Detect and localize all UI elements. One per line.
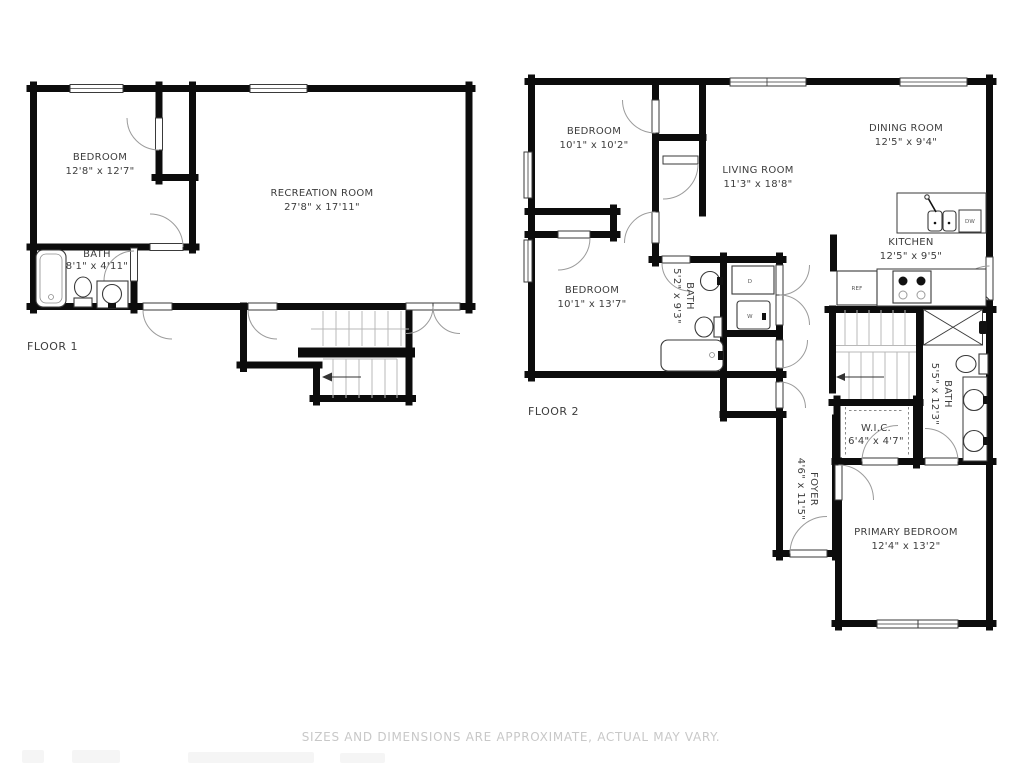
dishwasher-label: DW <box>965 219 975 225</box>
room-label-bath-primary-name: BATH <box>942 380 953 408</box>
door-leaf <box>663 156 698 164</box>
toilet-bowl <box>75 277 92 297</box>
refrigerator-label: REF <box>851 286 862 292</box>
floor2-kitchen-fixtures: DW REF <box>837 193 986 306</box>
door-leaf <box>433 303 460 310</box>
burner-icon <box>917 277 926 286</box>
floor1-walls <box>30 85 472 402</box>
burner-icon <box>899 277 908 286</box>
sink-tap <box>717 277 723 285</box>
floor1-labels: BEDROOM 12'8" x 12'7" BATH 8'1" x 4'11" … <box>27 152 374 353</box>
door-leaf <box>143 303 172 310</box>
room-label-foyer: FOYER 4'6" x 11'5" <box>795 458 819 520</box>
floorplan-drawing: BEDROOM 12'8" x 12'7" BATH 8'1" x 4'11" … <box>0 0 1023 767</box>
floor2-plan: DW REF D W <box>524 78 993 628</box>
sink-basin <box>943 211 956 231</box>
door-leaf <box>131 248 138 281</box>
room-label-recreation-dims: 27'8" x 17'11" <box>284 202 360 213</box>
room-label-dining-dims: 12'5" x 9'4" <box>875 137 937 148</box>
room-label-primary-name: PRIMARY BEDROOM <box>854 527 958 538</box>
stair-arrow-icon <box>322 373 332 382</box>
sink-basin <box>928 211 942 231</box>
room-label-wic-dims: 6'4" x 4'7" <box>848 436 904 447</box>
stove <box>893 271 931 303</box>
room-label-foyer-name: FOYER <box>808 472 819 506</box>
dryer-label: D <box>748 279 752 285</box>
bathtub <box>661 340 723 371</box>
burner-icon <box>917 291 925 299</box>
door-leaf <box>652 212 659 243</box>
room-label-bedroom-top-dims: 10'1" x 10'2" <box>559 140 628 151</box>
door-leaf <box>776 265 783 295</box>
tub-tap <box>718 351 723 360</box>
sink-basin <box>103 285 122 304</box>
room-label-primary-dims: 12'4" x 13'2" <box>871 541 940 552</box>
door-leaf <box>776 382 783 408</box>
door-leaf <box>776 295 783 325</box>
room-label-wic-name: W.I.C. <box>861 423 891 434</box>
floor2-title: FLOOR 2 <box>528 405 579 418</box>
watermark-smudge <box>72 750 120 763</box>
toilet-bowl <box>695 317 713 337</box>
floorplan-canvas: BEDROOM 12'8" x 12'7" BATH 8'1" x 4'11" … <box>0 0 1023 767</box>
shower-head-icon <box>979 321 987 334</box>
room-label-bath-primary-dims: 5'5" x 12'3" <box>929 363 940 425</box>
room-label-bath-hall-name: BATH <box>684 282 695 310</box>
watermark-smudge <box>22 750 44 763</box>
sink-tap <box>108 303 116 308</box>
door-leaf <box>558 231 590 238</box>
disclaimer-text: SIZES AND DIMENSIONS ARE APPROXIMATE, AC… <box>302 730 721 744</box>
room-label-recreation-name: RECREATION ROOM <box>271 188 374 199</box>
door-leaf <box>406 303 433 310</box>
sink-basin <box>964 390 985 411</box>
room-label-kitchen-name: KITCHEN <box>888 237 933 248</box>
burner-icon <box>899 291 907 299</box>
watermark-smudge <box>340 753 385 763</box>
room-label-bath-dims: 8'1" x 4'11" <box>66 261 128 272</box>
room-label-kitchen-dims: 12'5" x 9'5" <box>880 251 942 262</box>
room-label-foyer-dims: 4'6" x 11'5" <box>795 458 806 520</box>
toilet-tank <box>979 354 988 374</box>
door-leaf <box>156 118 163 150</box>
room-label-bedroom-mid-dims: 10'1" x 13'7" <box>557 299 626 310</box>
sink-tap <box>983 396 988 404</box>
room-label-bath-primary: BATH 5'5" x 12'3" <box>929 363 953 425</box>
door-leaf <box>790 550 827 557</box>
room-label-bedroom-mid-name: BEDROOM <box>565 285 619 296</box>
door-leaf <box>652 100 659 133</box>
washer-label: W <box>747 314 753 320</box>
room-label-bath-hall: BATH 5'2" x 9'3" <box>671 268 695 324</box>
door-leaf <box>862 458 898 465</box>
sink-tap <box>983 437 988 445</box>
toilet-bowl <box>956 356 976 373</box>
dryer <box>732 266 774 294</box>
door-leaf <box>925 458 958 465</box>
door-leaf <box>986 257 993 300</box>
floor1-plan: BEDROOM 12'8" x 12'7" BATH 8'1" x 4'11" … <box>27 85 472 403</box>
room-label-bedroom-top-name: BEDROOM <box>567 126 621 137</box>
room-label-dining-name: DINING ROOM <box>869 123 943 134</box>
sink-basin <box>701 272 720 291</box>
room-label-living-name: LIVING ROOM <box>722 165 793 176</box>
room-label-bath-name: BATH <box>83 249 111 260</box>
door-leaf <box>835 465 842 500</box>
sink-basin <box>964 431 985 452</box>
floor2-laundry: D W <box>732 266 774 329</box>
toilet-tank <box>714 317 722 337</box>
stair-arrow-icon <box>836 373 845 381</box>
door-leaf <box>150 244 183 251</box>
door-leaf <box>248 303 277 310</box>
watermark-smudge <box>188 752 314 763</box>
room-label-living-dims: 11'3" x 18'8" <box>723 179 792 190</box>
floor2-stairs <box>836 310 916 399</box>
toilet-tank <box>74 298 92 307</box>
room-label-bath-hall-dims: 5'2" x 9'3" <box>671 268 682 324</box>
room-label-bedroom-dims: 12'8" x 12'7" <box>65 166 134 177</box>
floor1-title: FLOOR 1 <box>27 340 78 353</box>
door-leaf <box>776 340 783 368</box>
room-label-bedroom-name: BEDROOM <box>73 152 127 163</box>
door-leaf <box>662 256 690 263</box>
